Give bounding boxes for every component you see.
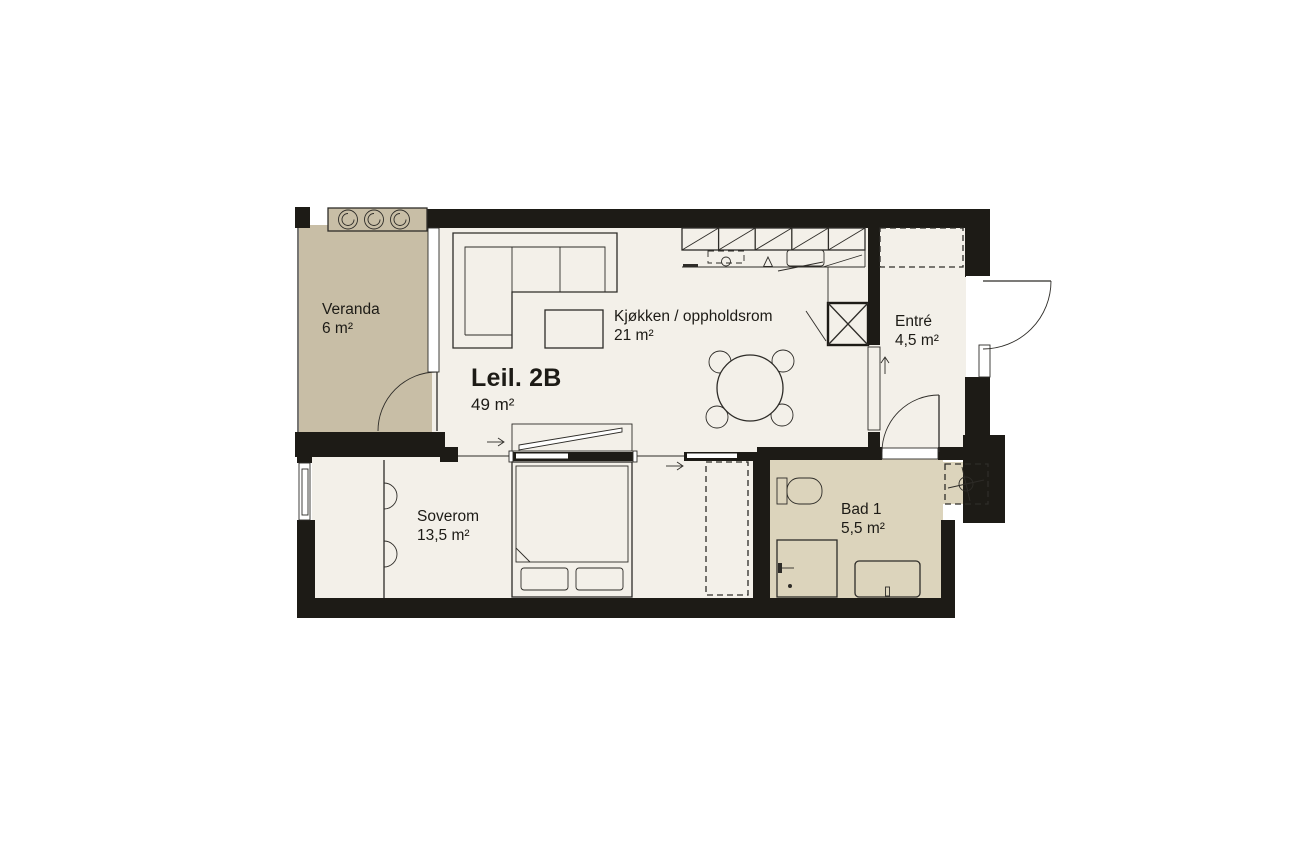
sliding-door-leaf	[512, 424, 632, 451]
veranda-planter	[328, 208, 427, 231]
room-area: 4,5 m²	[895, 332, 939, 351]
entrance-door	[966, 276, 1051, 349]
room-name: Bad 1	[841, 501, 882, 518]
room-area: 21 m²	[614, 327, 773, 346]
floorplan-drawing	[0, 0, 1300, 866]
bedroom-window	[297, 463, 312, 520]
floor-areas	[299, 225, 990, 600]
unit-name: Leil. 2B	[471, 366, 562, 391]
room-label-soverom: Soverom 13,5 m²	[417, 508, 479, 545]
sliding-panel-2	[687, 454, 737, 459]
bed	[512, 462, 632, 597]
room-label-veranda: Veranda 6 m²	[322, 301, 380, 338]
sliding-panel-1	[516, 454, 568, 459]
room-name: Soverom	[417, 508, 479, 525]
room-label-entre: Entré 4,5 m²	[895, 313, 939, 350]
veranda-window	[428, 228, 439, 372]
living-entre-opening	[868, 347, 880, 430]
room-area: 6 m²	[322, 320, 380, 339]
dining-table-with-chairs	[706, 350, 794, 428]
unit-title: Leil. 2B 49 m²	[471, 366, 562, 415]
room-area: 13,5 m²	[417, 527, 479, 546]
shaft-cross-icon	[828, 303, 868, 345]
floorplan-canvas: Veranda 6 m² Kjøkken / oppholdsrom 21 m²…	[0, 0, 1300, 866]
dining-table	[717, 355, 783, 421]
entre-window	[979, 345, 990, 377]
room-name: Entré	[895, 313, 932, 330]
room-name: Kjøkken / oppholdsrom	[614, 308, 773, 325]
room-name: Veranda	[322, 301, 380, 318]
room-label-bad: Bad 1 5,5 m²	[841, 501, 885, 538]
unit-area: 49 m²	[471, 395, 562, 415]
room-label-kitchen-living: Kjøkken / oppholdsrom 21 m²	[614, 308, 773, 345]
room-area: 5,5 m²	[841, 520, 885, 539]
